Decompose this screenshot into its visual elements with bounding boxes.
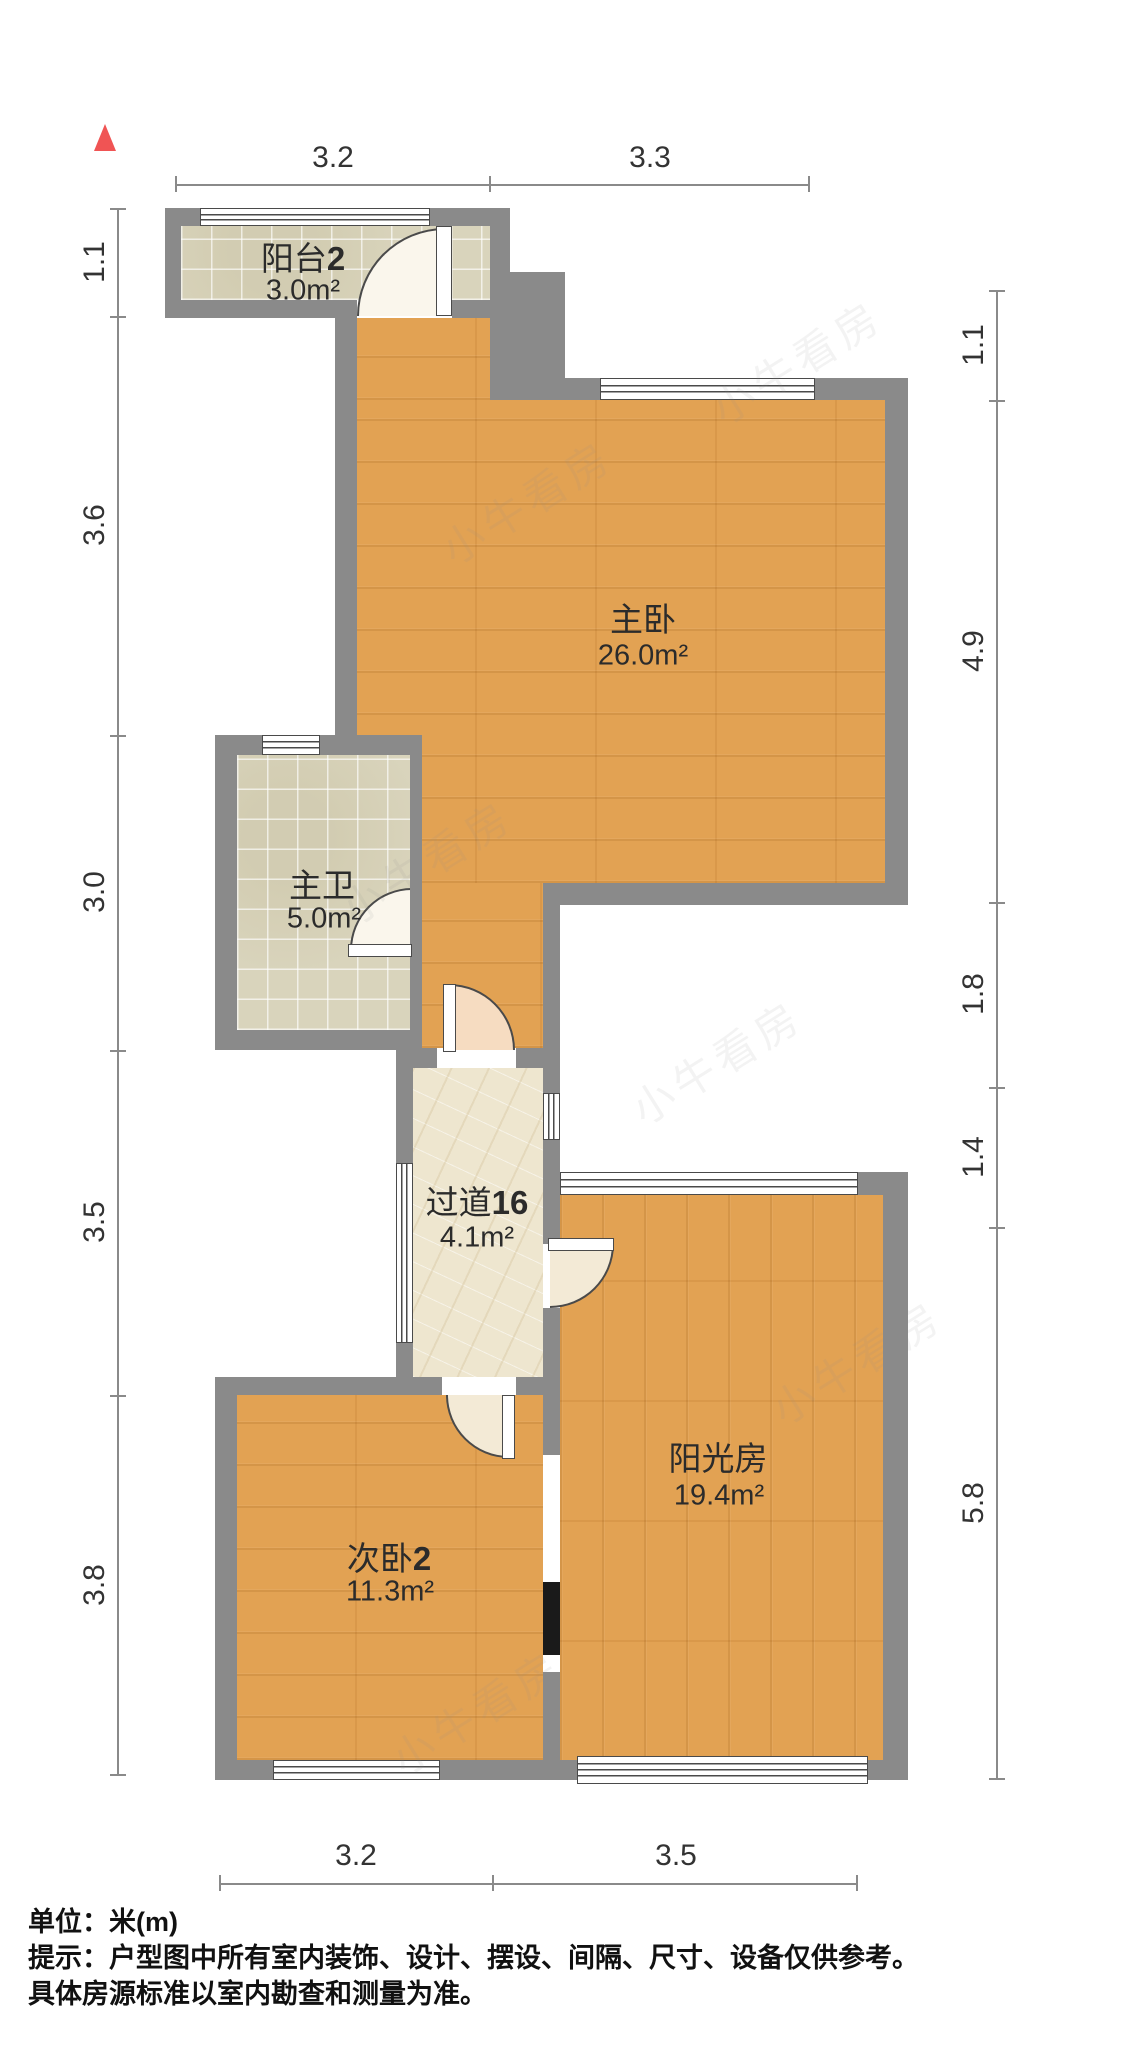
room-area-bedroom2: 11.3m² [346, 1576, 434, 1609]
wall [410, 735, 422, 1050]
dim-label: 3.6 [78, 504, 112, 546]
window-corridor-right [543, 1093, 560, 1140]
dim-tick [110, 1050, 126, 1052]
dim-tick [110, 316, 126, 318]
wall [396, 1050, 413, 1163]
dim-tick [989, 1087, 1005, 1089]
wall-panel-white [543, 1455, 560, 1582]
wall [215, 735, 237, 1050]
wall [543, 883, 560, 1093]
footer-tip-line1: 提示：户型图中所有室内装饰、设计、摆设、间隔、尺寸、设备仅供参考。 [28, 1936, 919, 1975]
dim-tick [489, 176, 491, 192]
dim-tick [808, 176, 810, 192]
door-leaf-corridor [443, 984, 456, 1052]
dim-tick [219, 1875, 221, 1891]
dim-label: 3.8 [78, 1564, 112, 1606]
footer-tip-line2: 具体房源标准以室内勘查和测量为准。 [28, 1972, 487, 2011]
wall [215, 1377, 237, 1780]
room-label-sunroom: 阳光房 [669, 1432, 768, 1480]
dim-label: 3.2 [312, 141, 354, 175]
floor-master-notch [357, 318, 490, 400]
dim-tick [989, 902, 1005, 904]
wall-panel-black [543, 1582, 560, 1655]
window-master-top [600, 378, 815, 400]
door-leaf-balcony [436, 226, 452, 316]
room-label-master-bedroom: 主卧 [610, 593, 676, 641]
floorplan-canvas: 阳台2 3.0m² 主卧 26.0m² 主卫 5.0m² 过道16 4.1m² … [0, 0, 1125, 2054]
dim-line-left [117, 208, 119, 1776]
room-label-corridor: 过道16 [426, 1176, 529, 1224]
dim-line-right [996, 290, 998, 1780]
wall [490, 272, 565, 400]
wall [565, 378, 600, 400]
dim-tick [110, 1774, 126, 1776]
dim-tick [989, 1778, 1005, 1780]
room-area-sunroom: 19.4m² [674, 1480, 764, 1513]
dim-label: 3.5 [78, 1201, 112, 1243]
door-leaf-bedroom2 [502, 1395, 515, 1459]
dim-tick [989, 290, 1005, 292]
dim-tick [989, 400, 1005, 402]
door-leaf-bath [348, 944, 412, 957]
wall [543, 883, 908, 905]
wall [543, 1308, 560, 1377]
dim-label: 3.3 [629, 141, 671, 175]
window-corridor-left [396, 1163, 413, 1343]
dim-tick [989, 1227, 1005, 1229]
room-label-bedroom2: 次卧2 [347, 1532, 431, 1580]
wall [516, 1048, 543, 1068]
wall [215, 1377, 442, 1395]
dim-tick [110, 208, 126, 210]
window-sunroom-top [560, 1172, 858, 1195]
dim-tick [110, 1395, 126, 1397]
room-area-master-bath: 5.0m² [287, 903, 361, 936]
dim-label: 4.9 [957, 630, 991, 672]
dim-label: 3.2 [335, 1839, 377, 1873]
wall [413, 1048, 437, 1068]
room-label-balcony2: 阳台2 [261, 232, 345, 280]
window-sunroom-bottom [577, 1756, 868, 1784]
wall [883, 1172, 908, 1780]
dim-label: 5.8 [957, 1482, 991, 1524]
wall [516, 1377, 543, 1395]
dim-tick [492, 1875, 494, 1891]
dim-label: 1.1 [957, 324, 991, 366]
wall-panel-white [543, 1655, 560, 1672]
dim-label: 3.5 [655, 1839, 697, 1873]
wall [335, 318, 357, 735]
watermark: 小牛看房 [618, 984, 813, 1137]
wall [885, 378, 908, 905]
room-label-master-bath: 主卫 [289, 859, 355, 907]
north-arrow-icon [94, 124, 116, 151]
dim-label: 1.1 [78, 241, 112, 283]
dim-tick [110, 735, 126, 737]
wall [165, 208, 200, 226]
dim-line-bottom [219, 1883, 858, 1885]
dim-line-top [175, 184, 810, 186]
wall [320, 735, 410, 755]
dim-tick [175, 176, 177, 192]
room-area-balcony2: 3.0m² [266, 275, 340, 308]
footer-unit-label: 单位：米(m) [28, 1900, 178, 1939]
dim-label: 3.0 [78, 871, 112, 913]
room-area-corridor: 4.1m² [440, 1222, 514, 1255]
window-bath-top [262, 735, 320, 755]
wall [215, 1030, 422, 1050]
dim-label: 1.8 [957, 973, 991, 1015]
door-leaf-sunroom [548, 1238, 614, 1251]
dim-tick [856, 1875, 858, 1891]
window-balcony-top [200, 208, 430, 226]
room-area-master-bedroom: 26.0m² [598, 640, 688, 673]
window-bedroom2-bottom [273, 1760, 440, 1780]
dim-label: 1.4 [957, 1136, 991, 1178]
